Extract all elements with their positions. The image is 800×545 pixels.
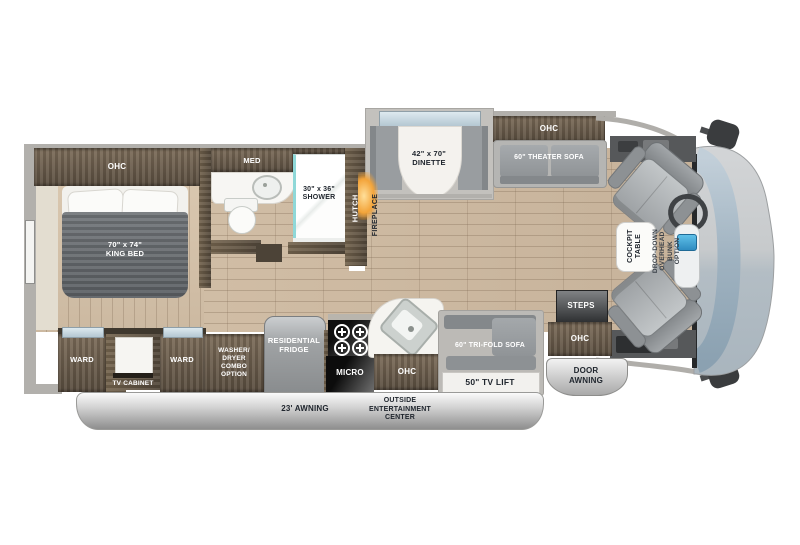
washer-dryer-label: WASHER/ DRYER COMBO OPTION xyxy=(206,338,262,388)
hutch-base-trim xyxy=(349,266,365,271)
rear-window xyxy=(25,220,35,284)
burner-icon xyxy=(352,324,368,340)
ward-right-label: WARD xyxy=(160,352,204,366)
bedroom-bath-wall xyxy=(199,148,211,288)
door-awning-label: DOOR AWNING xyxy=(546,358,626,394)
burner-icon xyxy=(334,340,350,356)
cockpit-table-label: COCKPIT TABLE xyxy=(627,229,643,263)
burner-icon xyxy=(334,324,350,340)
burner-icon xyxy=(352,340,368,356)
bottom-window xyxy=(62,327,104,338)
fireplace-label: FIREPLACE xyxy=(372,194,380,236)
trifold-seat-front xyxy=(446,356,536,370)
steps-label: STEPS xyxy=(556,290,606,322)
bottom-window xyxy=(163,327,203,338)
ward-left-label: WARD xyxy=(58,352,106,366)
tv-lift-label: 50" TV LIFT xyxy=(442,372,538,392)
shower-sill xyxy=(288,242,346,254)
outside-entertainment-label: OUTSIDE ENTERTAINMENT CENTER xyxy=(352,394,448,426)
fridge-label: RESIDENTIAL FRIDGE xyxy=(264,332,324,358)
bath-step xyxy=(256,244,282,262)
bottom-left-wall xyxy=(24,384,62,394)
tv-screen xyxy=(115,337,153,374)
theater-sofa-front xyxy=(500,176,599,184)
bedroom-ohc-label: OHC xyxy=(34,148,200,186)
king-bed-label: 70" x 74" KING BED xyxy=(62,236,188,262)
awning-label: 23' AWNING xyxy=(245,402,365,416)
med-label: MED xyxy=(211,148,293,172)
toilet-bowl xyxy=(228,206,256,234)
micro-label: MICRO xyxy=(326,366,374,380)
entry-ohc-label: OHC xyxy=(548,322,612,356)
kitchen-ohc-label: OHC xyxy=(374,354,440,390)
sofa-ohc-label: OHC xyxy=(493,116,605,142)
overhead-bunk-label-box: DROP-DOWN OVERHEAD BUNK OPTION xyxy=(644,196,690,306)
dinette-label: 42" x 70" DINETTE xyxy=(398,146,460,170)
bath-sink xyxy=(252,175,282,200)
faucet-icon xyxy=(408,326,414,332)
tv-cabinet-label: TV CABINET xyxy=(103,378,163,390)
theater-sofa-label: 60" THEATER SOFA xyxy=(493,152,605,164)
bath-lower-wall xyxy=(211,240,261,254)
shower-label: 30" x 36" SHOWER xyxy=(295,182,343,206)
trifold-sofa-label: 60" TRI-FOLD SOFA xyxy=(440,340,540,352)
bath-sink-drain xyxy=(263,183,267,187)
fireplace-label-box: FIREPLACE xyxy=(368,176,384,254)
overhead-bunk-label: DROP-DOWN OVERHEAD BUNK OPTION xyxy=(652,228,682,274)
dinette-window xyxy=(379,111,481,127)
floorplan: OHC 70" x 74" KING BED MED 30" x 36" SHO… xyxy=(0,0,800,545)
dinette-bench xyxy=(458,126,488,190)
side-mirror-icon xyxy=(697,115,741,151)
